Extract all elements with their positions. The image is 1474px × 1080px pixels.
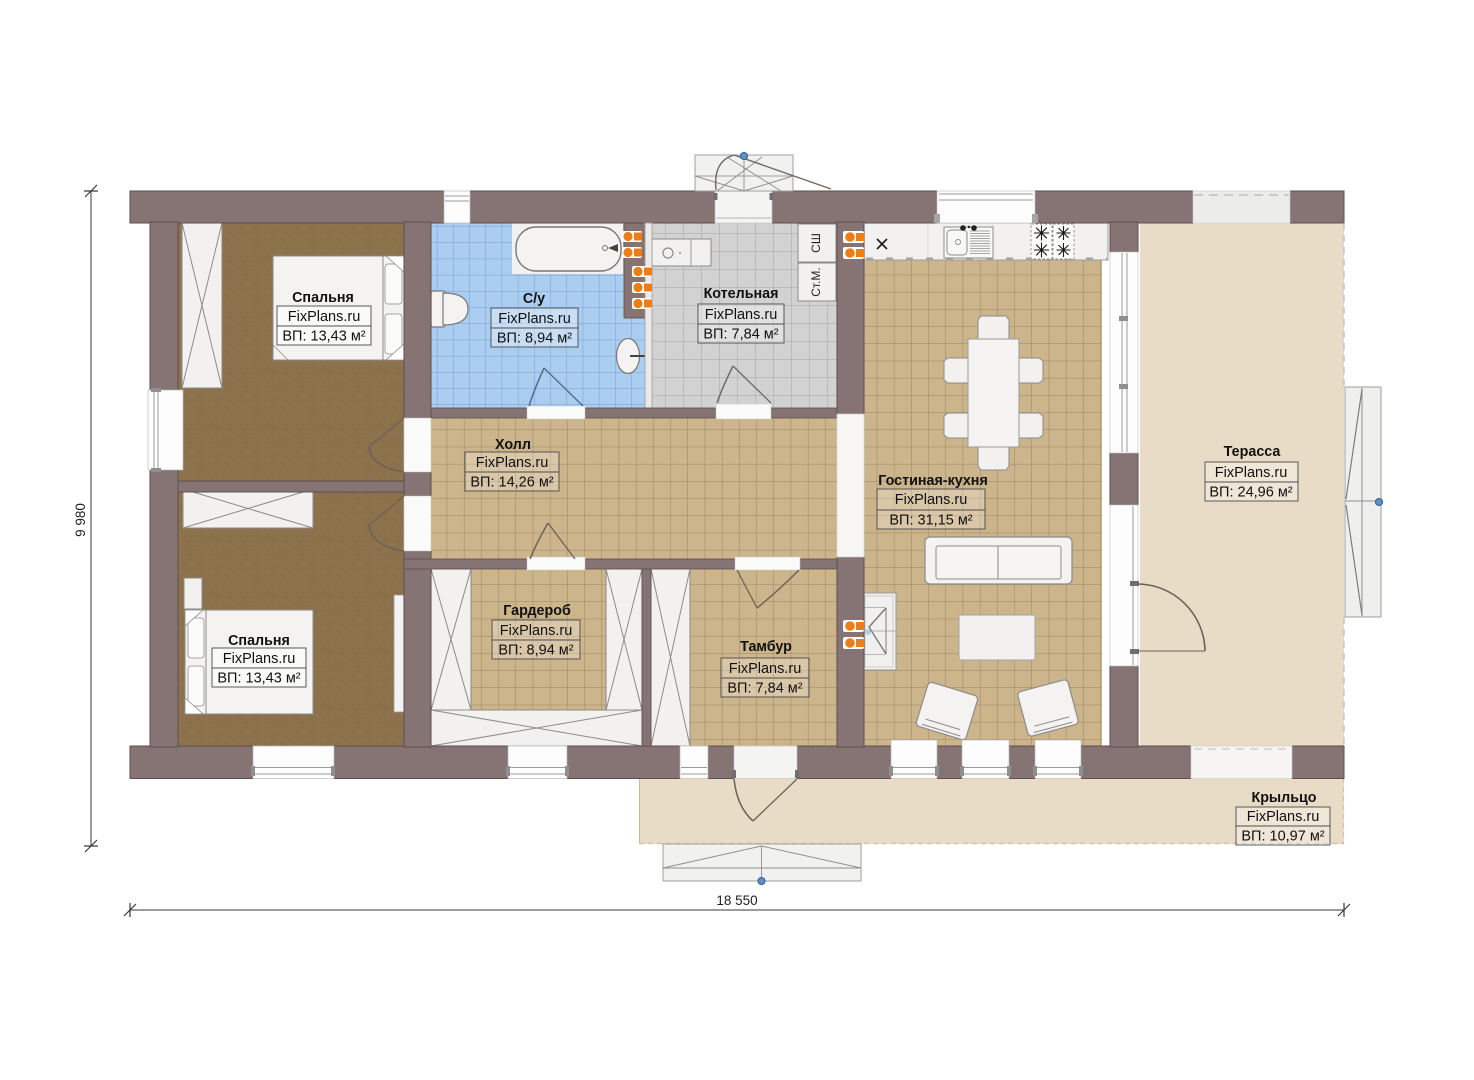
svg-text:FixPlans.ru: FixPlans.ru	[1215, 465, 1288, 481]
svg-text:ВП: 13,43 м²: ВП: 13,43 м²	[282, 329, 365, 345]
svg-text:FixPlans.ru: FixPlans.ru	[223, 651, 296, 667]
svg-text:FixPlans.ru: FixPlans.ru	[500, 623, 573, 639]
svg-text:FixPlans.ru: FixPlans.ru	[729, 661, 802, 677]
svg-text:FixPlans.ru: FixPlans.ru	[1247, 809, 1320, 825]
svg-text:ВП: 8,94 м²: ВП: 8,94 м²	[497, 331, 572, 347]
svg-text:Спальня: Спальня	[228, 633, 290, 649]
svg-text:FixPlans.ru: FixPlans.ru	[895, 492, 968, 508]
svg-text:FixPlans.ru: FixPlans.ru	[476, 455, 549, 471]
svg-text:9 980: 9 980	[73, 503, 88, 537]
svg-text:СШ: СШ	[809, 233, 823, 253]
svg-text:ВП: 8,94 м²: ВП: 8,94 м²	[498, 643, 573, 659]
svg-text:FixPlans.ru: FixPlans.ru	[705, 307, 778, 323]
svg-text:ВП: 14,26 м²: ВП: 14,26 м²	[470, 475, 553, 491]
svg-text:ВП: 10,97 м²: ВП: 10,97 м²	[1241, 829, 1324, 845]
svg-text:ВП: 24,96 м²: ВП: 24,96 м²	[1209, 485, 1292, 501]
svg-text:Гардероб: Гардероб	[503, 603, 571, 619]
svg-text:Ст.М.: Ст.М.	[809, 267, 823, 297]
svg-text:FixPlans.ru: FixPlans.ru	[288, 309, 361, 325]
svg-text:Котельная: Котельная	[704, 286, 779, 302]
svg-text:С/у: С/у	[523, 291, 545, 307]
svg-text:ВП: 13,43 м²: ВП: 13,43 м²	[217, 671, 300, 687]
svg-text:Спальня: Спальня	[292, 290, 354, 306]
svg-text:ВП: 7,84 м²: ВП: 7,84 м²	[727, 681, 802, 697]
svg-text:Терасса: Терасса	[1224, 444, 1282, 460]
svg-text:Крыльцо: Крыльцо	[1251, 790, 1316, 806]
svg-text:ВП: 7,84 м²: ВП: 7,84 м²	[703, 327, 778, 343]
svg-text:ВП: 31,15 м²: ВП: 31,15 м²	[889, 513, 972, 529]
svg-text:Тамбур: Тамбур	[740, 639, 792, 655]
svg-text:Холл: Холл	[495, 437, 531, 453]
svg-text:18 550: 18 550	[716, 893, 757, 908]
svg-text:FixPlans.ru: FixPlans.ru	[498, 311, 571, 327]
svg-text:Гостиная-кухня: Гостиная-кухня	[878, 473, 988, 489]
